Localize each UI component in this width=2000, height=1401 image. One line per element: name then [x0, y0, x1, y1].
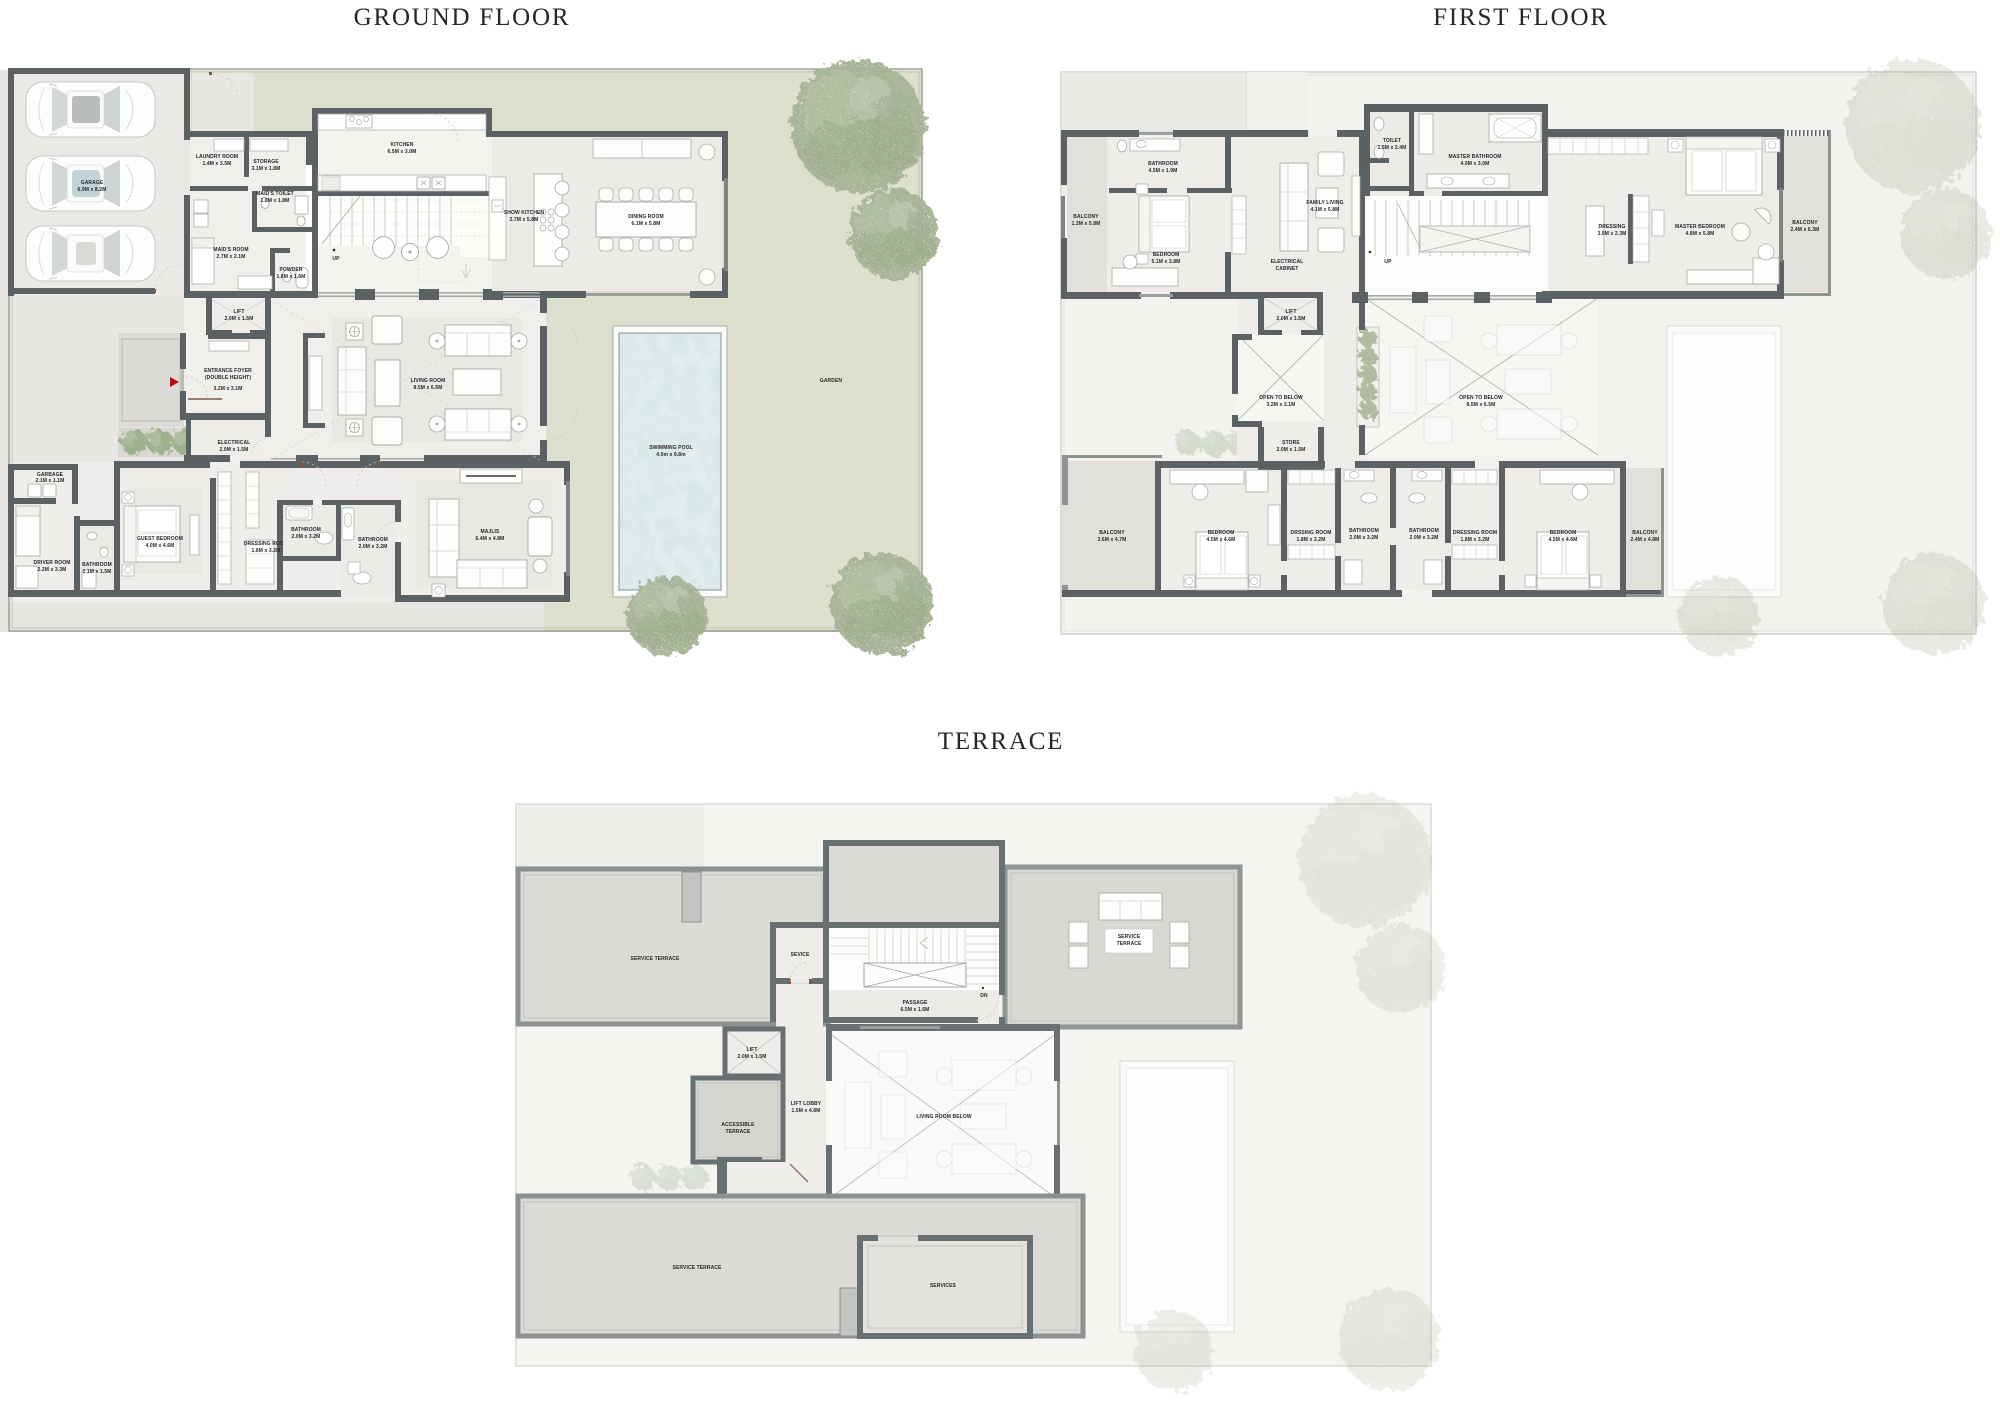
- svg-text:4.5M x 1.9M: 4.5M x 1.9M: [1149, 168, 1178, 174]
- svg-text:SERVICE: SERVICE: [1118, 934, 1141, 940]
- svg-text:UP: UP: [1384, 259, 1392, 265]
- svg-text:2.0M x 1.5M: 2.0M x 1.5M: [1277, 447, 1306, 453]
- svg-text:BATHROOM: BATHROOM: [1349, 528, 1379, 534]
- svg-text:LIVING ROOM BELOW: LIVING ROOM BELOW: [916, 1114, 971, 1120]
- svg-text:3.2M x 3.1M: 3.2M x 3.1M: [1267, 402, 1296, 408]
- svg-text:3.1M x 1.8M: 3.1M x 1.8M: [252, 166, 281, 172]
- svg-text:1.4M x 3.5M: 1.4M x 3.5M: [203, 161, 232, 167]
- svg-text:BATHROOM: BATHROOM: [358, 537, 388, 543]
- svg-text:3.6M x 4.7M: 3.6M x 4.7M: [1098, 537, 1127, 543]
- svg-text:BEDROOM: BEDROOM: [1550, 530, 1577, 536]
- svg-text:1.8M x 3.2M: 1.8M x 3.2M: [252, 548, 281, 554]
- svg-text:DRESSING ROOM: DRESSING ROOM: [244, 541, 288, 547]
- svg-text:LAUNDRY ROOM: LAUNDRY ROOM: [196, 154, 238, 160]
- svg-text:KITCHEN: KITCHEN: [391, 142, 414, 148]
- svg-text:1.8M x 1.6M: 1.8M x 1.6M: [277, 274, 306, 280]
- svg-text:DRESSING: DRESSING: [1599, 224, 1626, 230]
- svg-text:GARAGE: GARAGE: [81, 180, 104, 186]
- svg-text:UP: UP: [332, 256, 340, 262]
- svg-text:4.1M x 5.8M: 4.1M x 5.8M: [1311, 207, 1340, 213]
- svg-text:GUEST BEDROOM: GUEST BEDROOM: [137, 536, 183, 542]
- svg-text:BALCONY: BALCONY: [1632, 530, 1658, 536]
- svg-text:TERRACE: TERRACE: [1117, 941, 1142, 947]
- svg-text:MAID'S TOILET: MAID'S TOILET: [256, 191, 294, 197]
- svg-text:6.1M x 5.8M: 6.1M x 5.8M: [632, 221, 661, 227]
- svg-text:4.0m x 9.8m: 4.0m x 9.8m: [656, 452, 686, 458]
- svg-text:BALCONY: BALCONY: [1792, 220, 1818, 226]
- svg-text:SERVICE TERRACE: SERVICE TERRACE: [673, 1265, 722, 1271]
- svg-text:STORAGE: STORAGE: [253, 159, 279, 165]
- svg-text:5.1M x 3.8M: 5.1M x 3.8M: [1152, 259, 1181, 265]
- svg-text:SHOW KITCHEN: SHOW KITCHEN: [504, 210, 545, 216]
- svg-text:2.4M x 4.8M: 2.4M x 4.8M: [1631, 537, 1660, 543]
- svg-text:2.0M x 3.2M: 2.0M x 3.2M: [1410, 535, 1439, 541]
- svg-text:2.0M x 1.5M: 2.0M x 1.5M: [225, 316, 254, 322]
- svg-text:2.0M x 1.5M: 2.0M x 1.5M: [1277, 316, 1306, 322]
- svg-text:8.5M x 6.5M: 8.5M x 6.5M: [1467, 402, 1496, 408]
- svg-text:TERRACE: TERRACE: [726, 1129, 751, 1135]
- svg-text:SERVICES: SERVICES: [930, 1283, 957, 1289]
- svg-text:8.5M x 6.5M: 8.5M x 6.5M: [414, 385, 443, 391]
- svg-text:BATHROOM: BATHROOM: [291, 527, 321, 533]
- svg-text:BATHROOM: BATHROOM: [82, 562, 112, 568]
- svg-text:MAJLIS: MAJLIS: [481, 529, 500, 535]
- svg-text:1.8M x 3.2M: 1.8M x 3.2M: [1461, 537, 1490, 543]
- svg-text:DRESSING ROOM: DRESSING ROOM: [1453, 530, 1497, 536]
- svg-text:6.4M x 4.8M: 6.4M x 4.8M: [476, 536, 505, 542]
- svg-text:POWDER: POWDER: [279, 267, 302, 273]
- svg-text:3.9M x 2.3M: 3.9M x 2.3M: [1598, 231, 1627, 237]
- svg-text:ACCESSIBLE: ACCESSIBLE: [721, 1122, 755, 1128]
- svg-text:LIFT: LIFT: [747, 1047, 758, 1053]
- svg-text:OPEN TO BELOW: OPEN TO BELOW: [1259, 395, 1303, 401]
- svg-text:1.8M x 3.2M: 1.8M x 3.2M: [1297, 537, 1326, 543]
- svg-text:4.8M x 5.8M: 4.8M x 5.8M: [1686, 231, 1715, 237]
- svg-text:2.0M x 1.5M: 2.0M x 1.5M: [220, 447, 249, 453]
- svg-text:BALCONY: BALCONY: [1099, 530, 1125, 536]
- svg-text:2.4M x 6.3M: 2.4M x 6.3M: [1791, 227, 1820, 233]
- svg-text:2.0M x 3.2M: 2.0M x 3.2M: [1350, 535, 1379, 541]
- svg-text:MAID'S ROOM: MAID'S ROOM: [213, 247, 248, 253]
- svg-text:BALCONY: BALCONY: [1073, 214, 1099, 220]
- svg-text:2.0M x 3.2M: 2.0M x 3.2M: [359, 544, 388, 550]
- svg-text:2.0M x 1.5M: 2.0M x 1.5M: [738, 1054, 767, 1060]
- svg-text:6.5M x 3.0M: 6.5M x 3.0M: [388, 149, 417, 155]
- svg-text:CABINET: CABINET: [1276, 266, 1299, 272]
- svg-text:2.7M x 5.8M: 2.7M x 5.8M: [510, 217, 539, 223]
- svg-text:2.0M x 3.2M: 2.0M x 3.2M: [292, 534, 321, 540]
- svg-text:SWIMMING POOL: SWIMMING POOL: [649, 445, 693, 451]
- svg-text:GROUND FLOOR: GROUND FLOOR: [354, 4, 571, 31]
- svg-text:DN: DN: [980, 993, 988, 999]
- svg-text:SERVICE TERRACE: SERVICE TERRACE: [631, 956, 680, 962]
- svg-text:2.1M x 1.5M: 2.1M x 1.5M: [83, 569, 112, 575]
- svg-text:BATHROOM: BATHROOM: [1148, 161, 1178, 167]
- svg-text:BATHROOM: BATHROOM: [1409, 528, 1439, 534]
- svg-text:DINING ROOM: DINING ROOM: [628, 214, 664, 220]
- svg-text:1.5M x 2.4M: 1.5M x 2.4M: [1378, 145, 1407, 151]
- svg-text:ELECTRICAL: ELECTRICAL: [218, 440, 251, 446]
- svg-text:FAMILY LIVING: FAMILY LIVING: [1306, 200, 1343, 206]
- svg-text:ENTRANCE FOYER: ENTRANCE FOYER: [204, 368, 252, 374]
- svg-text:6.5M x 1.6M: 6.5M x 1.6M: [901, 1007, 930, 1013]
- svg-text:DRSSING ROOM: DRSSING ROOM: [1291, 530, 1332, 536]
- svg-text:4.0M x 4.6M: 4.0M x 4.6M: [146, 543, 175, 549]
- svg-text:4.5M x 4.6M: 4.5M x 4.6M: [1549, 537, 1578, 543]
- svg-text:3.2M x 3.1M: 3.2M x 3.1M: [214, 386, 243, 392]
- svg-text:2.2M x 3.3M: 2.2M x 3.3M: [38, 567, 67, 573]
- svg-text:6.9M x 8.2M: 6.9M x 8.2M: [78, 187, 107, 193]
- svg-text:GARDEN: GARDEN: [820, 378, 843, 384]
- svg-text:1.8M x 1.8M: 1.8M x 1.8M: [261, 198, 290, 204]
- svg-text:TERRACE: TERRACE: [938, 728, 1065, 755]
- svg-text:BEDROOM: BEDROOM: [1153, 252, 1180, 258]
- svg-text:ELECTRICAL: ELECTRICAL: [1271, 259, 1304, 265]
- svg-text:2.7M x 2.1M: 2.7M x 2.1M: [217, 254, 246, 260]
- svg-text:LIFT LOBBY: LIFT LOBBY: [791, 1101, 822, 1107]
- svg-text:BEDROOM: BEDROOM: [1208, 530, 1235, 536]
- svg-text:1.5M x 4.8M: 1.5M x 4.8M: [792, 1108, 821, 1114]
- svg-text:STORE: STORE: [1282, 440, 1300, 446]
- svg-text:4.9M x 3.0M: 4.9M x 3.0M: [1461, 161, 1490, 167]
- svg-text:4.5M x 4.6M: 4.5M x 4.6M: [1207, 537, 1236, 543]
- svg-text:OPEN TO BELOW: OPEN TO BELOW: [1459, 395, 1503, 401]
- svg-text:MASTER BEDROOM: MASTER BEDROOM: [1675, 224, 1725, 230]
- svg-text:MASTER BATHROOM: MASTER BATHROOM: [1448, 154, 1501, 160]
- svg-text:1.3M x 5.8M: 1.3M x 5.8M: [1072, 221, 1101, 227]
- svg-text:FIRST FLOOR: FIRST FLOOR: [1433, 4, 1609, 31]
- svg-text:LIFT: LIFT: [234, 309, 245, 315]
- svg-text:LIFT: LIFT: [1286, 309, 1297, 315]
- svg-text:LIVING ROOM: LIVING ROOM: [411, 378, 446, 384]
- svg-text:SEVICE: SEVICE: [791, 952, 811, 958]
- svg-text:TOILET: TOILET: [1383, 138, 1401, 144]
- svg-text:(DOUBLE HEIGHT): (DOUBLE HEIGHT): [205, 375, 251, 381]
- svg-text:DRIVER ROOM: DRIVER ROOM: [34, 560, 71, 566]
- svg-text:PASSAGE: PASSAGE: [903, 1000, 928, 1006]
- svg-text:2.1M x 1.1M: 2.1M x 1.1M: [36, 478, 65, 484]
